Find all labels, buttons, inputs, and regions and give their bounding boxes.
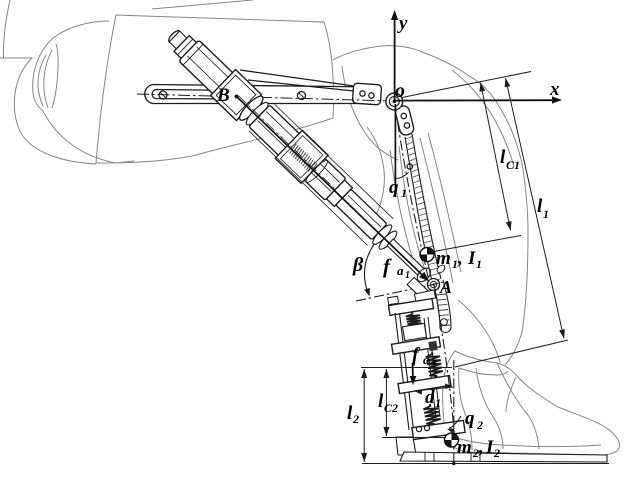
svg-text:,: ,	[478, 437, 484, 458]
svg-text:m: m	[436, 248, 451, 269]
svg-text:q: q	[465, 408, 475, 429]
svg-text:1: 1	[405, 270, 410, 281]
svg-text:2: 2	[476, 418, 483, 432]
svg-text:A: A	[439, 277, 452, 297]
svg-text:a: a	[423, 352, 430, 367]
svg-text:1: 1	[401, 186, 407, 200]
svg-text:I: I	[485, 437, 494, 458]
svg-text:2: 2	[493, 446, 500, 460]
svg-text:C1: C1	[506, 158, 520, 172]
svg-text:q: q	[389, 177, 399, 198]
svg-text:1: 1	[435, 396, 441, 410]
svg-text:m: m	[457, 437, 472, 458]
svg-text:2: 2	[352, 412, 359, 426]
svg-text:I: I	[467, 248, 476, 269]
svg-text:1: 1	[476, 257, 482, 271]
svg-text:x: x	[549, 79, 560, 100]
svg-text:d: d	[425, 387, 435, 408]
svg-text:y: y	[397, 13, 408, 34]
svg-text:B: B	[216, 85, 230, 106]
svg-text:a: a	[397, 263, 404, 278]
svg-text:C2: C2	[384, 401, 398, 415]
svg-text:1: 1	[543, 207, 549, 221]
svg-text:2: 2	[472, 446, 479, 460]
svg-text:β: β	[352, 254, 364, 276]
svg-text:,: ,	[457, 248, 463, 269]
svg-text:2: 2	[430, 359, 436, 370]
svg-text:o: o	[395, 80, 405, 102]
